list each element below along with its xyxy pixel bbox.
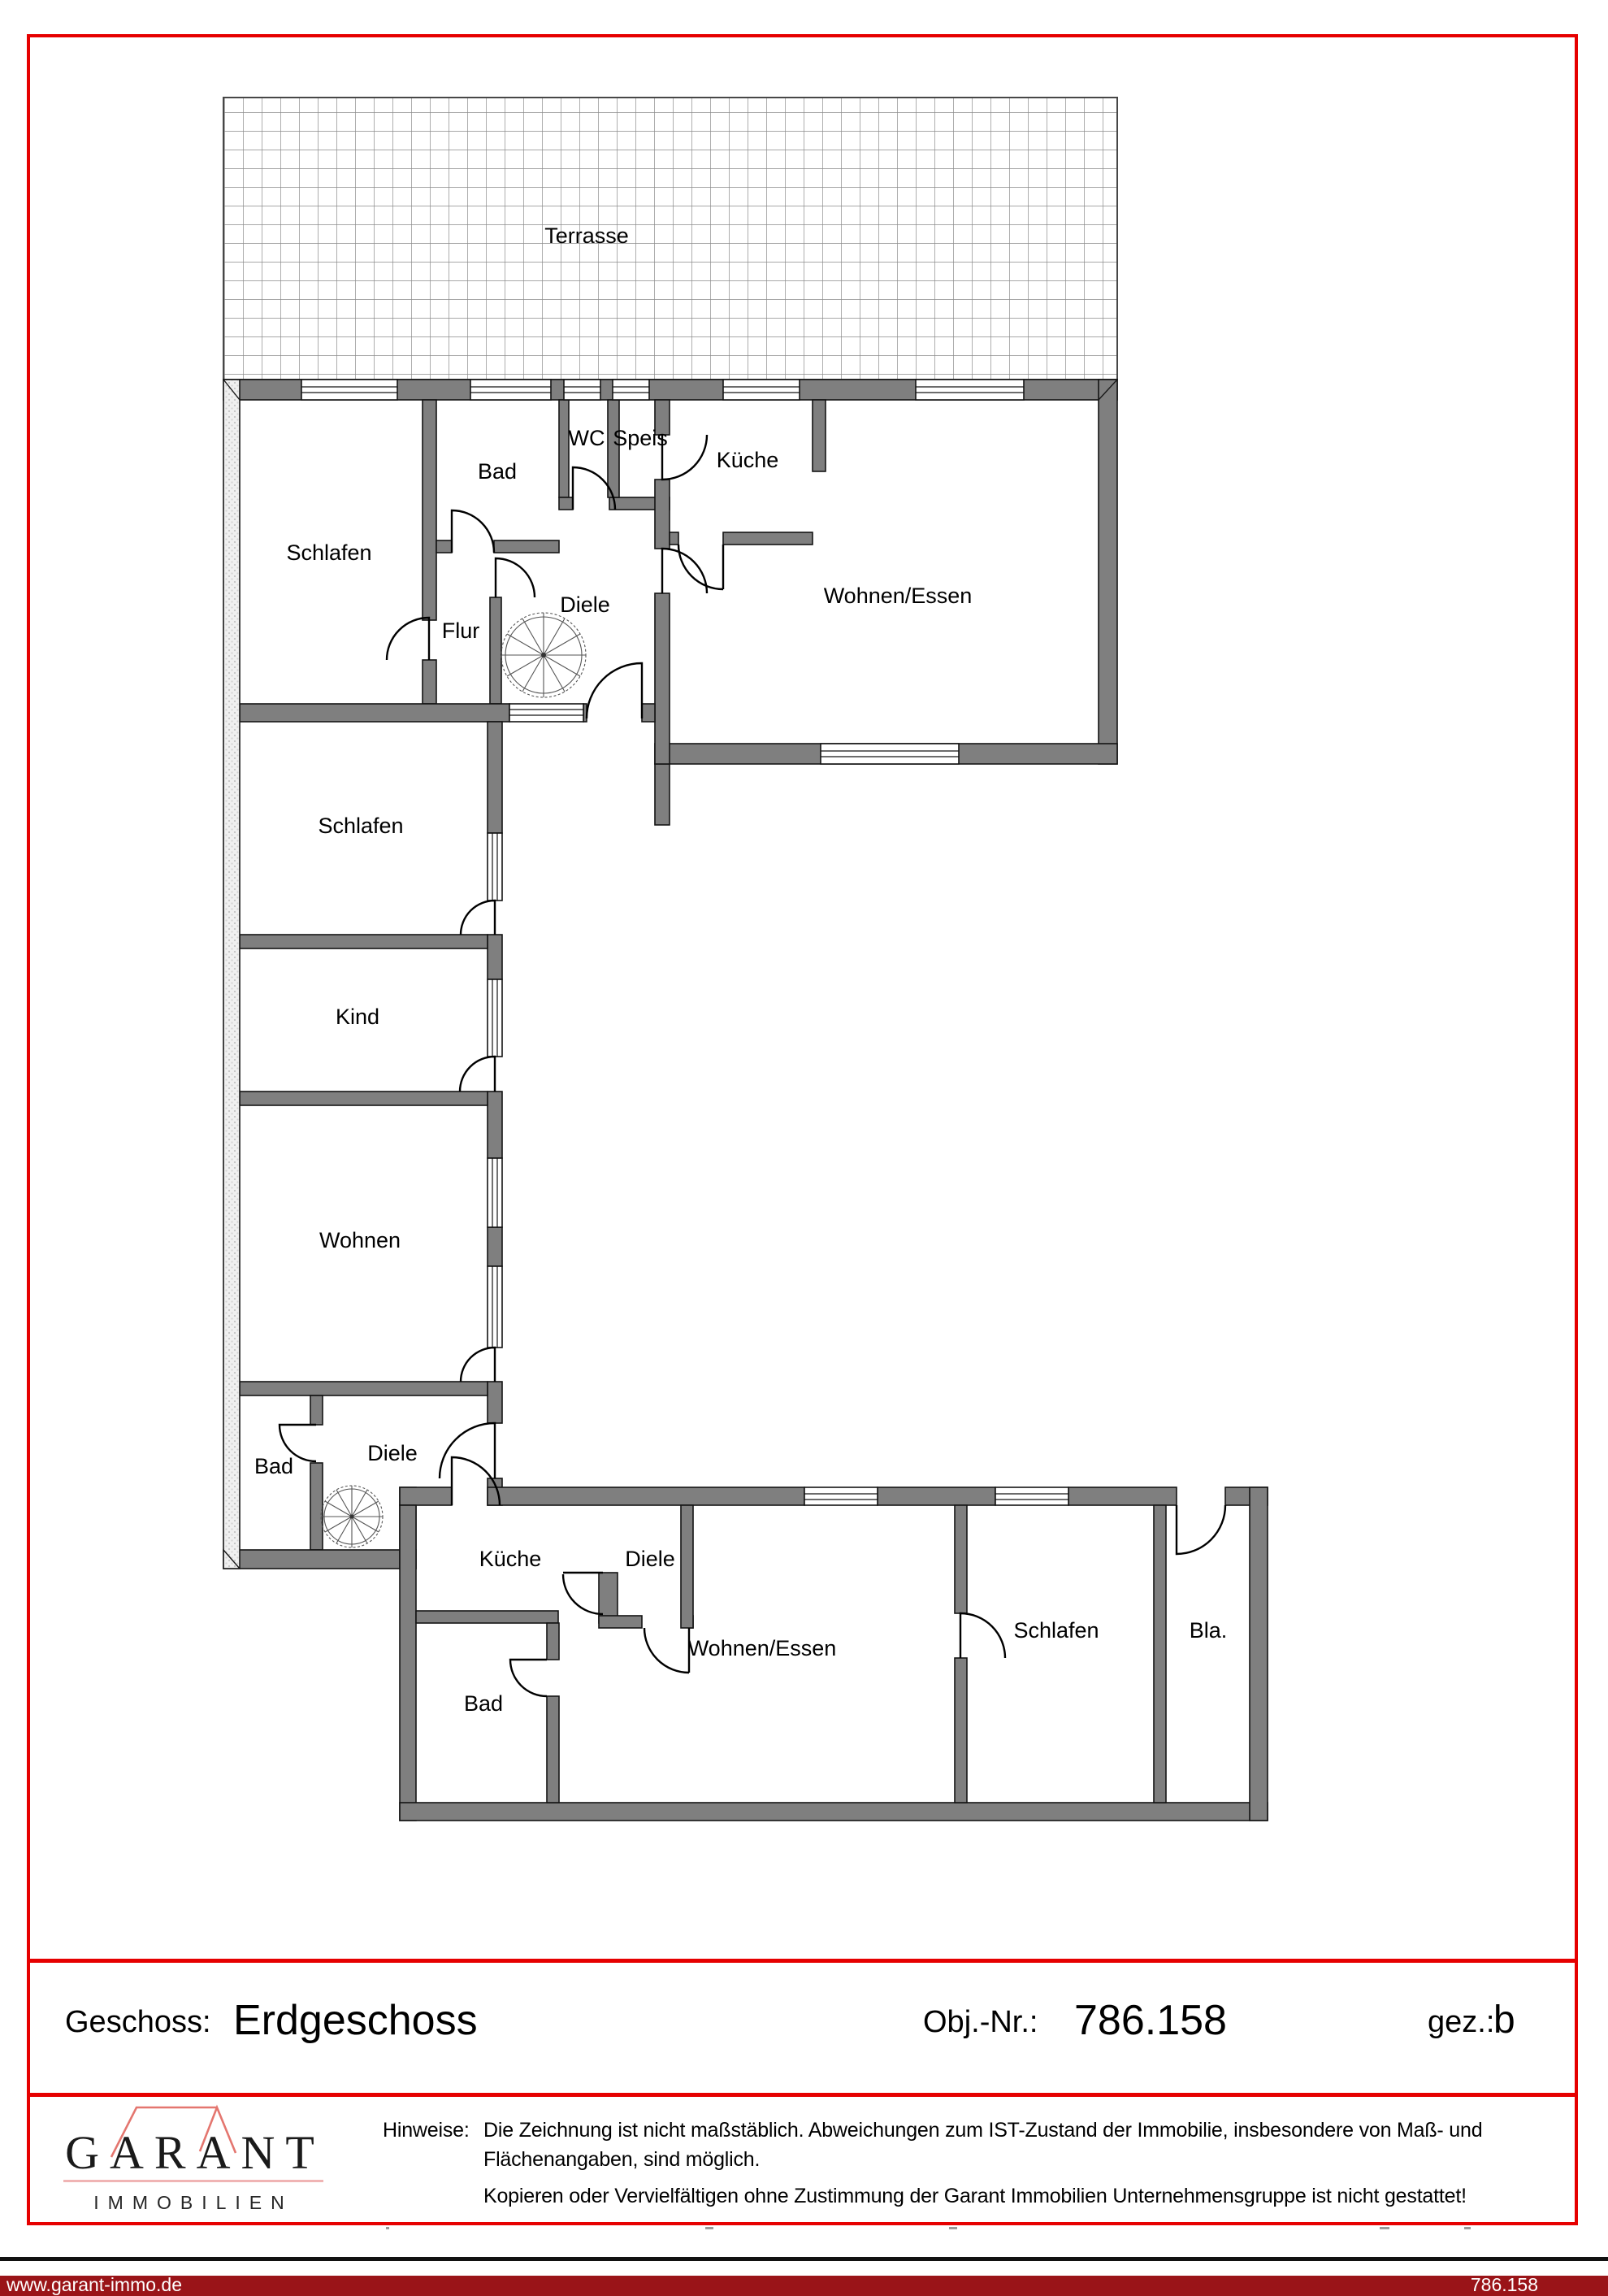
footer-divider-top bbox=[28, 1959, 1576, 1963]
floorplan-page: Terrasse bbox=[0, 0, 1608, 2296]
hinweise-line-3: Kopieren oder Vervielfältigen ohne Zusti… bbox=[483, 2185, 1467, 2207]
room-label-schlafen-2: Schlafen bbox=[318, 814, 403, 838]
gez-label: gez.: bbox=[1428, 2005, 1494, 2039]
bottom-black-rule bbox=[0, 2257, 1608, 2261]
room-label-kueche-lower: Küche bbox=[479, 1547, 542, 1571]
obj-nr-label: Obj.-Nr.: bbox=[923, 2005, 1038, 2039]
room-label-wohnen: Wohnen bbox=[319, 1228, 401, 1252]
bottom-bar: www.garant-immo.de 786.158 bbox=[0, 2274, 1608, 2296]
website-link[interactable]: www.garant-immo.de bbox=[6, 2274, 182, 2295]
bottom-bar-background bbox=[0, 2276, 1608, 2296]
hinweise-label: Hinweise: bbox=[383, 2119, 470, 2142]
window-icon bbox=[488, 1266, 502, 1348]
room-label-speis: Speis bbox=[613, 426, 668, 450]
bar-object-number: 786.158 bbox=[1471, 2274, 1538, 2295]
room-label-wohnen-essen-upper: Wohnen/Essen bbox=[824, 584, 973, 608]
window-icon bbox=[488, 1158, 502, 1227]
geschoss-value: Erdgeschoss bbox=[233, 1997, 478, 2044]
hinweise-line-1: Die Zeichnung ist nicht maßstäblich. Abw… bbox=[483, 2119, 1482, 2142]
room-label-terrasse: Terrasse bbox=[544, 224, 629, 248]
logo-underline bbox=[63, 2180, 323, 2182]
floorplan-drawing: Terrasse bbox=[0, 0, 1608, 2296]
window-icon bbox=[509, 704, 583, 722]
obj-nr-value: 786.158 bbox=[1074, 1997, 1227, 2044]
room-label-diele-wing: Diele bbox=[367, 1441, 418, 1465]
room-label-bad-upper: Bad bbox=[478, 459, 517, 484]
room-label-bad-wing: Bad bbox=[254, 1454, 293, 1478]
geschoss-label: Geschoss: bbox=[65, 2005, 211, 2039]
window-icon bbox=[301, 380, 397, 400]
window-icon bbox=[723, 380, 800, 400]
room-label-bad-lower: Bad bbox=[464, 1691, 503, 1716]
window-icon bbox=[821, 744, 959, 764]
room-label-kind: Kind bbox=[336, 1005, 379, 1029]
room-label-schlafen-1: Schlafen bbox=[286, 540, 371, 565]
window-icon bbox=[916, 380, 1024, 400]
room-label-balkon: Bla. bbox=[1190, 1618, 1228, 1643]
room-label-flur: Flur bbox=[442, 618, 480, 643]
room-label-wc: WC bbox=[569, 426, 605, 450]
hinweise-line-2: Flächenangaben, sind möglich. bbox=[483, 2148, 760, 2171]
window-icon bbox=[564, 380, 600, 400]
window-icon bbox=[488, 979, 502, 1057]
window-icon bbox=[995, 1487, 1068, 1505]
room-label-wohnen-essen-lower: Wohnen/Essen bbox=[688, 1636, 837, 1660]
terrace: Terrasse bbox=[223, 98, 1117, 380]
room-label-schlafen-lower: Schlafen bbox=[1013, 1618, 1099, 1643]
logo-subtitle: IMMOBILIEN bbox=[93, 2192, 293, 2213]
window-icon bbox=[613, 380, 649, 400]
window-icon bbox=[470, 380, 551, 400]
window-icon bbox=[804, 1487, 878, 1505]
window-icon bbox=[488, 833, 502, 901]
logo-wordmark: GARANT bbox=[65, 2126, 325, 2179]
room-label-diele-lower: Diele bbox=[625, 1547, 675, 1571]
gez-value: b bbox=[1493, 1999, 1515, 2042]
room-label-kueche-upper: Küche bbox=[717, 448, 779, 472]
footer-divider-bottom bbox=[28, 2093, 1576, 2097]
room-label-diele-upper: Diele bbox=[560, 592, 610, 617]
